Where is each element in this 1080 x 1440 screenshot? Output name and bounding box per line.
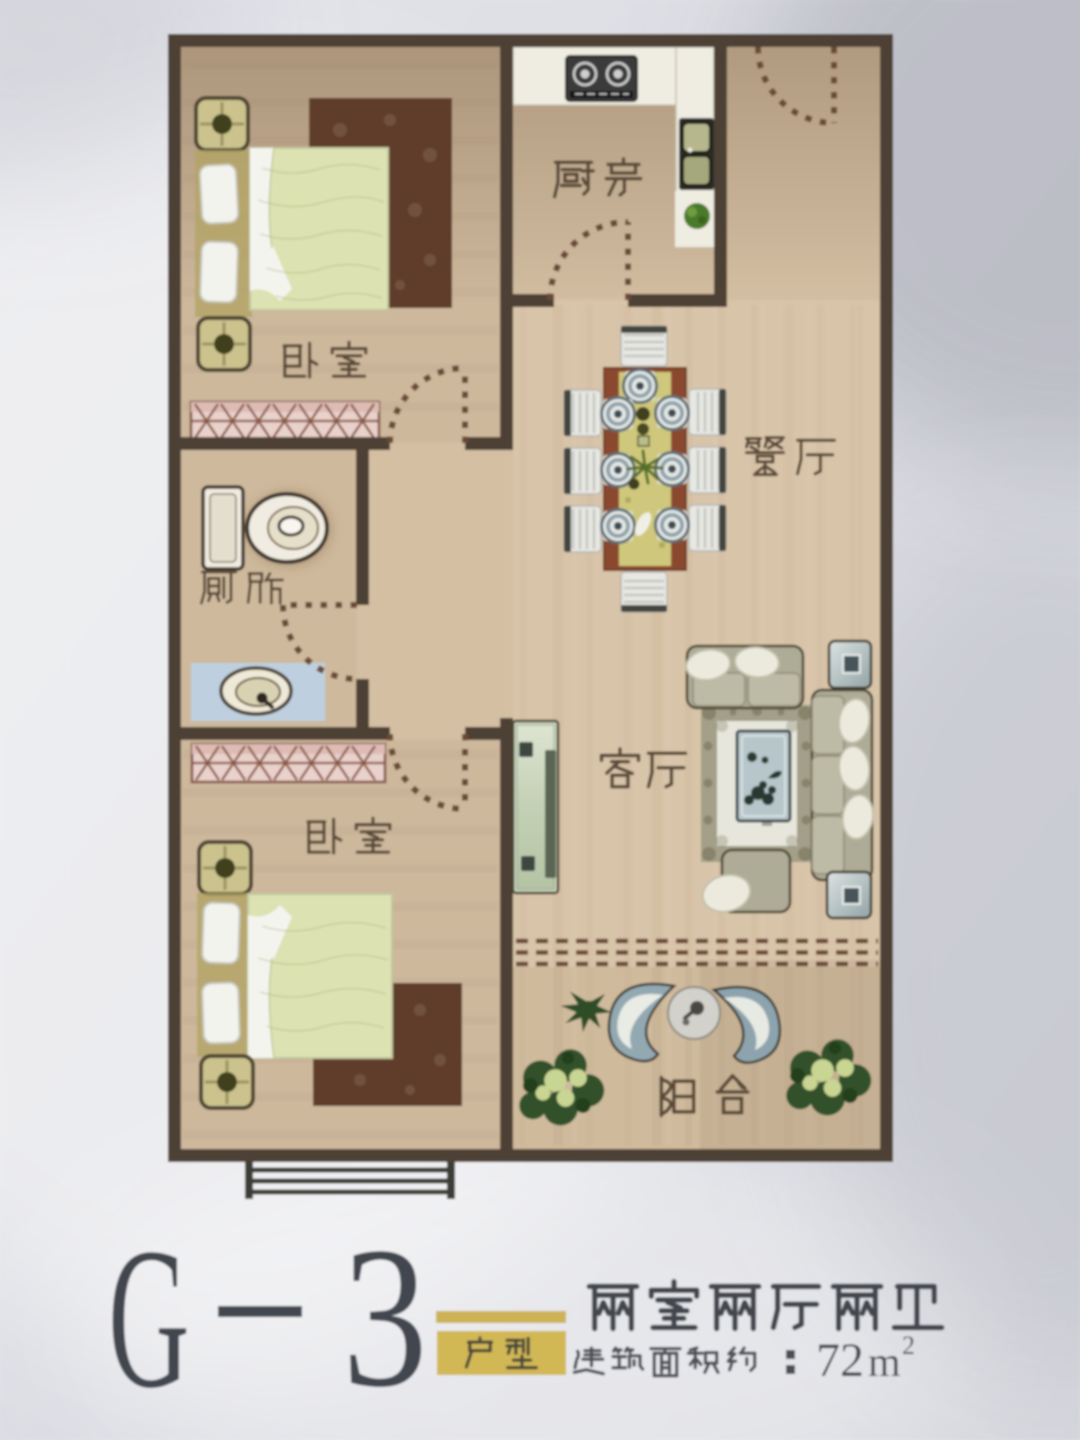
svg-text:72: 72 (816, 1334, 864, 1387)
svg-text:2: 2 (902, 1331, 915, 1360)
svg-text:3: 3 (342, 1205, 428, 1429)
svg-text:m: m (868, 1340, 901, 1386)
svg-text:G: G (108, 1207, 190, 1430)
